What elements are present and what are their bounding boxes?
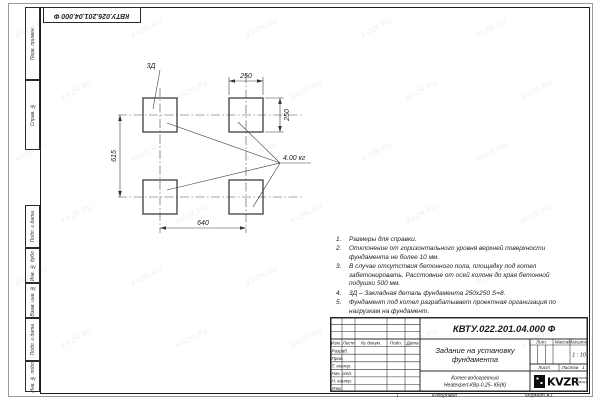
product-line2: Heatexpert-КВр-0,25- КБ(К) <box>444 383 506 389</box>
weight-label: 4.00 кг <box>283 155 306 162</box>
margin-label: Подп. и дата <box>30 324 36 355</box>
doc-number: КВТУ.022.201.04.000 Ф <box>453 324 556 335</box>
margin-label: Инв. № подл. <box>30 361 36 393</box>
margin-box-sprav-no: Справ. № <box>25 80 40 150</box>
kvzr-logo-text: KVZR <box>547 376 580 389</box>
row-utv: Утв. <box>332 386 342 391</box>
fold-mark: 1 <box>396 393 399 399</box>
col-izm: Изм. <box>331 340 341 345</box>
note-number: 5. <box>336 299 349 316</box>
note-number: 4. <box>336 290 349 298</box>
note-item: 4. 3Д – Закладная деталь фундамента 250х… <box>336 290 576 298</box>
col-data: Дата <box>405 340 419 345</box>
margin-label: Справ. № <box>30 103 36 126</box>
format-label: Формат А3 <box>525 393 552 399</box>
margin-box-inv-dubl: Инв. № дубл. <box>25 248 40 283</box>
mass-label: Масса <box>555 340 569 345</box>
margin-box-podp-data-1: Подп. и дата <box>25 205 40 248</box>
row-nkontr: Н. контр. <box>332 379 353 384</box>
copied-label: Копировал <box>432 393 457 399</box>
notes-list: 1. Размеры для справки. 2. Отклонение от… <box>336 236 576 317</box>
col-docnum: № докум. <box>361 340 381 345</box>
note-number: 1. <box>336 236 349 244</box>
note-number: 2. <box>336 245 349 262</box>
note-text: Фундамент под котел разрабатывает проект… <box>349 299 576 316</box>
note-item: 2. Отклонение от горизонтального уровня … <box>336 245 576 262</box>
leader-embed-detail <box>153 70 160 109</box>
note-text: Отклонение от горизонтального уровня вер… <box>349 245 576 262</box>
lit-label: Лит. <box>535 340 547 345</box>
dim-250-right: 250 <box>284 109 291 122</box>
row-nachotd: Нач. отд. <box>332 371 353 376</box>
note-item: 3. В случае отсутствия бетонного пола, п… <box>336 263 576 288</box>
margin-label: Подп. и дата <box>30 211 36 242</box>
drawing-sheet: KVZR.RUKVZR.RUKVZR.RUKVZR.RUKVZR.RUKVZR.… <box>0 0 600 400</box>
dim-615-left: 615 <box>111 150 118 162</box>
row-prov: Пров. <box>332 356 344 361</box>
row-tkontr: Т. контр. <box>332 364 352 369</box>
scale-value: 1 : 10 <box>572 353 587 359</box>
row-razrab: Разраб. <box>332 348 349 353</box>
margin-label: Взам. инв. № <box>30 285 36 317</box>
kvzr-qr-dot <box>537 378 539 380</box>
kvzr-qr-dot <box>541 382 543 384</box>
margin-box-perv-primen: Перв. примен. <box>25 7 40 80</box>
sheets-value: 1 <box>582 365 585 370</box>
note-text: В случае отсутствия бетонного пола, площ… <box>349 263 576 288</box>
kvzr-logo-sub2: ЗАВОД РЭП <box>576 380 588 384</box>
leader-weight <box>167 122 311 207</box>
sheets-label: Листов <box>561 365 579 370</box>
title-block: Изм. Лист № докум. Подп. Дата Разраб. Пр… <box>330 317 588 392</box>
dim-640-bottom: 640 <box>197 220 209 227</box>
rotated-doc-number-stamp: КВТУ.026.201.04.000 Ф <box>43 7 141 23</box>
margin-label: Инв. № дубл. <box>30 250 36 281</box>
sheet-label: Лист <box>537 365 550 370</box>
product-line1: Котел водогрейный <box>451 375 499 382</box>
rotated-doc-number: КВТУ.026.201.04.000 Ф <box>54 12 129 19</box>
col-list: Лист <box>342 340 355 345</box>
dim-250-top: 250 <box>239 73 252 80</box>
doc-title-line1: Задание на установку <box>435 346 516 355</box>
margin-label: Перв. примен. <box>30 27 36 60</box>
kvzr-qr-icon <box>534 375 545 388</box>
embed-detail-label: 3Д <box>147 63 156 70</box>
note-text: 3Д – Закладная деталь фундамента 250х250… <box>349 290 576 298</box>
note-item: 5. Фундамент под котел разрабатывает про… <box>336 299 576 316</box>
kvzr-logo-sub1: КОТЕЛЬНЫЙ <box>576 376 588 380</box>
margin-box-inv-podl: Инв. № подл. <box>25 361 40 392</box>
col-podp: Подп. <box>390 340 402 345</box>
doc-title-line2: фундамента <box>452 355 498 364</box>
scale-label: Масштаб <box>568 340 588 345</box>
margin-box-podp-data-2: Подп. и дата <box>25 318 40 361</box>
margin-box-vzam-inv: Взам. инв. № <box>25 283 40 318</box>
note-item: 1. Размеры для справки. <box>336 236 576 244</box>
note-number: 3. <box>336 263 349 288</box>
foundation-plan: 250 250 615 640 3Д 4.00 кг <box>50 50 350 250</box>
note-text: Размеры для справки. <box>349 236 576 244</box>
